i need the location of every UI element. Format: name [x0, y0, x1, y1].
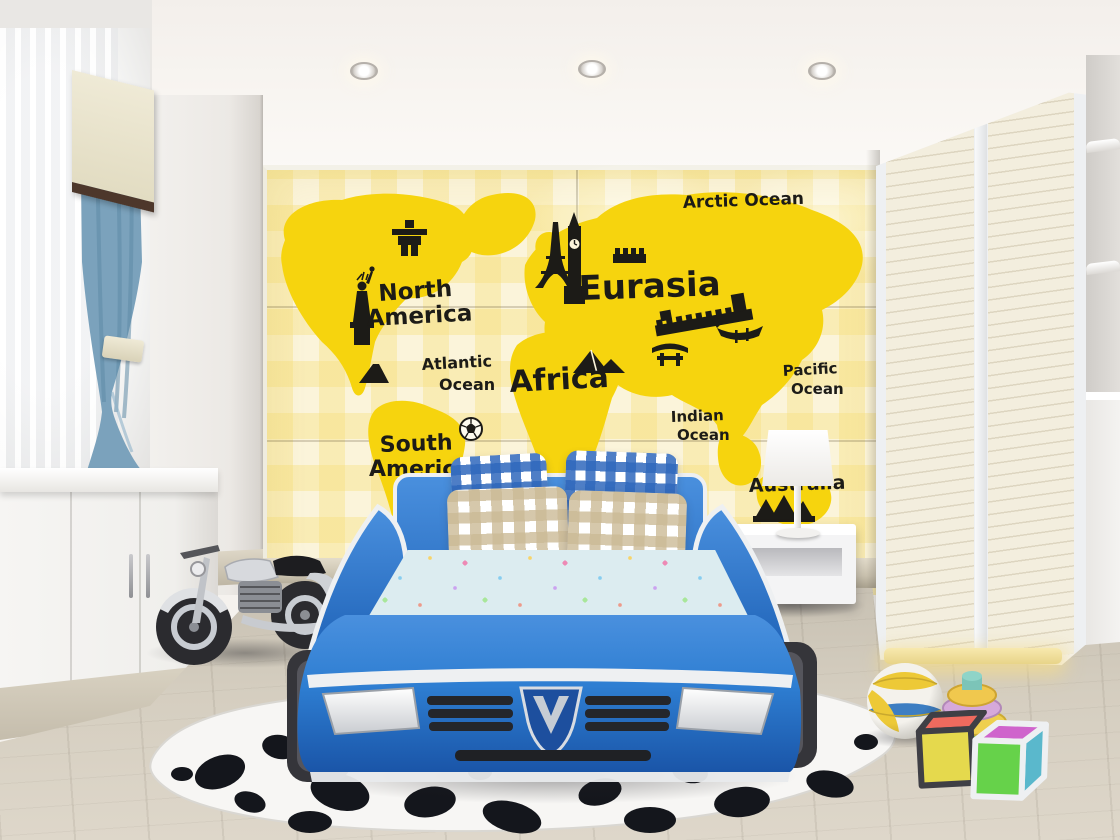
- handlebar: [180, 545, 220, 559]
- cabinet-door-seam: [70, 492, 72, 707]
- recessed-downlight-icon: [350, 62, 378, 80]
- label-indian-ocean-line1: Indian: [671, 406, 725, 426]
- recessed-downlight-icon: [808, 62, 836, 80]
- grille-right: [585, 696, 671, 731]
- label-pacific-ocean-line2: Ocean: [791, 380, 844, 398]
- headlight: [191, 562, 205, 576]
- label-arctic-ocean: Arctic Ocean: [682, 189, 804, 213]
- label-atlantic-ocean-line2: Ocean: [439, 375, 495, 394]
- label-atlantic-ocean-line1: Atlantic: [421, 351, 492, 374]
- block-front-yellow: [919, 729, 974, 786]
- recessed-downlight-icon: [578, 60, 606, 78]
- toy-blocks: [908, 710, 1053, 810]
- shelf-unit-cabinet: [1086, 392, 1120, 656]
- window-sill: [0, 468, 218, 492]
- label-north-america-line2: America: [366, 300, 473, 331]
- sliding-wardrobe: [876, 88, 1088, 666]
- bumper-trim: [310, 772, 790, 782]
- wardrobe-door-left: [886, 88, 974, 666]
- car-bed-front: [285, 600, 825, 795]
- label-eurasia: Eurasia: [578, 264, 721, 309]
- grille-left: [427, 696, 513, 731]
- kids-bedroom-scene: Arctic Ocean North America Atlantic Ocea…: [0, 0, 1120, 840]
- label-pacific-ocean-line1: Pacific: [782, 359, 838, 380]
- headlight-right: [677, 688, 773, 734]
- fuel-tank: [225, 559, 278, 582]
- ring-cap-top: [962, 671, 982, 681]
- label-africa: Africa: [509, 360, 610, 400]
- wardrobe-door-frame: [975, 88, 987, 666]
- soccer-ball-icon: [460, 418, 482, 440]
- valance: [72, 70, 154, 212]
- headlight-left: [323, 688, 419, 734]
- cabinet-handle: [129, 554, 133, 598]
- wardrobe-door-right: [988, 88, 1074, 666]
- block-front-green: [973, 740, 1023, 798]
- label-indian-ocean-line2: Ocean: [677, 426, 730, 444]
- bumper-slot: [455, 750, 651, 761]
- block-white-frame: [973, 722, 1046, 798]
